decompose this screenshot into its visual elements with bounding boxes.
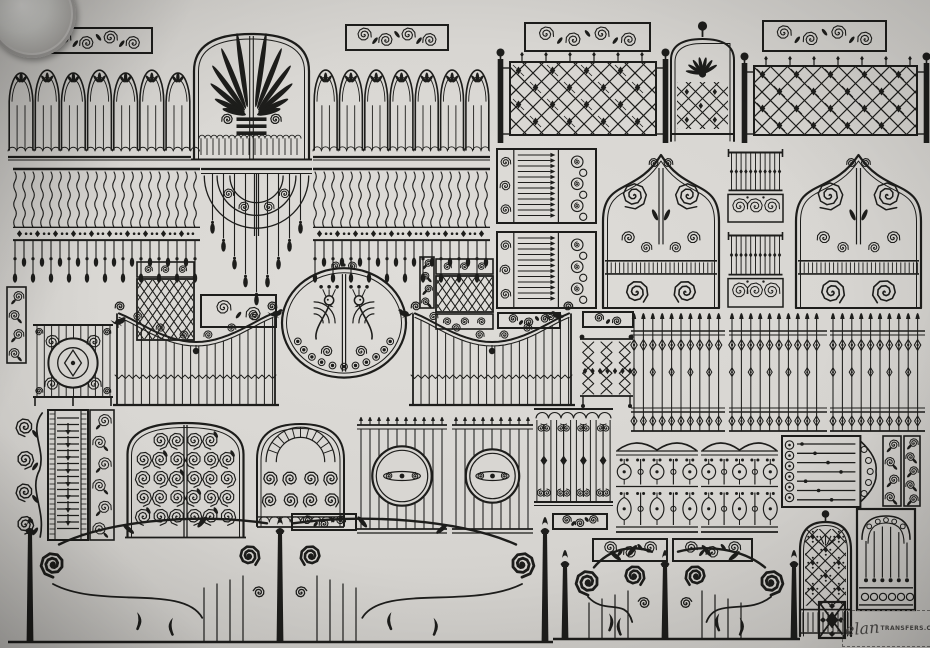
ironwork-designs-svg [0,0,930,648]
vertical-scroll-border [7,287,26,363]
scroll-border-strip [763,21,886,51]
scroll-border-strip [553,514,607,529]
spear-picket-fence [830,313,925,431]
palm-arch-gate [191,33,312,160]
bird-silhouette [111,317,126,328]
medallion-gate [33,325,113,406]
bar-and-scroll-panel [497,232,596,308]
louver-arrow-column [48,410,88,540]
bird-silhouette [398,309,413,320]
spear-picket-fence [631,313,725,431]
swag-picket-fence [113,302,279,405]
vertical-scroll-border [420,257,434,308]
fan-drop-centerpiece [201,169,312,305]
picket-scroll-panel [728,149,783,222]
watermark-signature: elan [844,619,880,638]
ogee-scroll-gate [796,155,921,308]
spear-picket-fence [729,313,827,431]
vertical-scroll-border [90,410,114,540]
bar-gate-with-keystone [782,436,876,507]
arched-picket-fence [313,70,490,160]
diamond-lattice-fence [437,49,714,144]
wavy-baluster-fence [13,169,200,283]
scroll-border-strip [583,312,633,327]
watermark: elan TRANSFERS.COM [842,610,930,647]
photographed-ironwork-sheet: elan TRANSFERS.COM [0,0,930,648]
watermark-domain-text: TRANSFERS.COM [880,625,930,632]
scroll-border-strip [498,313,560,328]
ironwork-pattern-sheet [0,0,930,648]
bar-and-scroll-panel [497,149,596,223]
circle-medallion-gate [452,417,533,533]
zigzag-lattice-panel [580,335,634,408]
arched-picket-fence [8,70,199,160]
arched-scroll-window [257,424,344,527]
swag-picket-fence [409,302,575,405]
lattice-panel-scroll-header [76,262,229,340]
scroll-border-strip [525,23,650,51]
arched-bar-grille [857,509,915,610]
diamond-lattice-fence [685,53,930,144]
art-nouveau-gate [553,544,800,639]
wavy-baluster-panel [616,443,698,532]
circle-medallion-gate [357,417,447,533]
ogee-scroll-gate [603,155,719,308]
vertical-scroll-border [883,436,901,506]
scroll-border-strip [346,25,448,50]
baluster-grid-panel [534,409,613,506]
vertical-scroll-border [904,436,920,506]
wavy-baluster-panel [701,443,778,532]
picket-scroll-panel [728,232,783,307]
art-nouveau-driveway-gate [8,515,553,642]
